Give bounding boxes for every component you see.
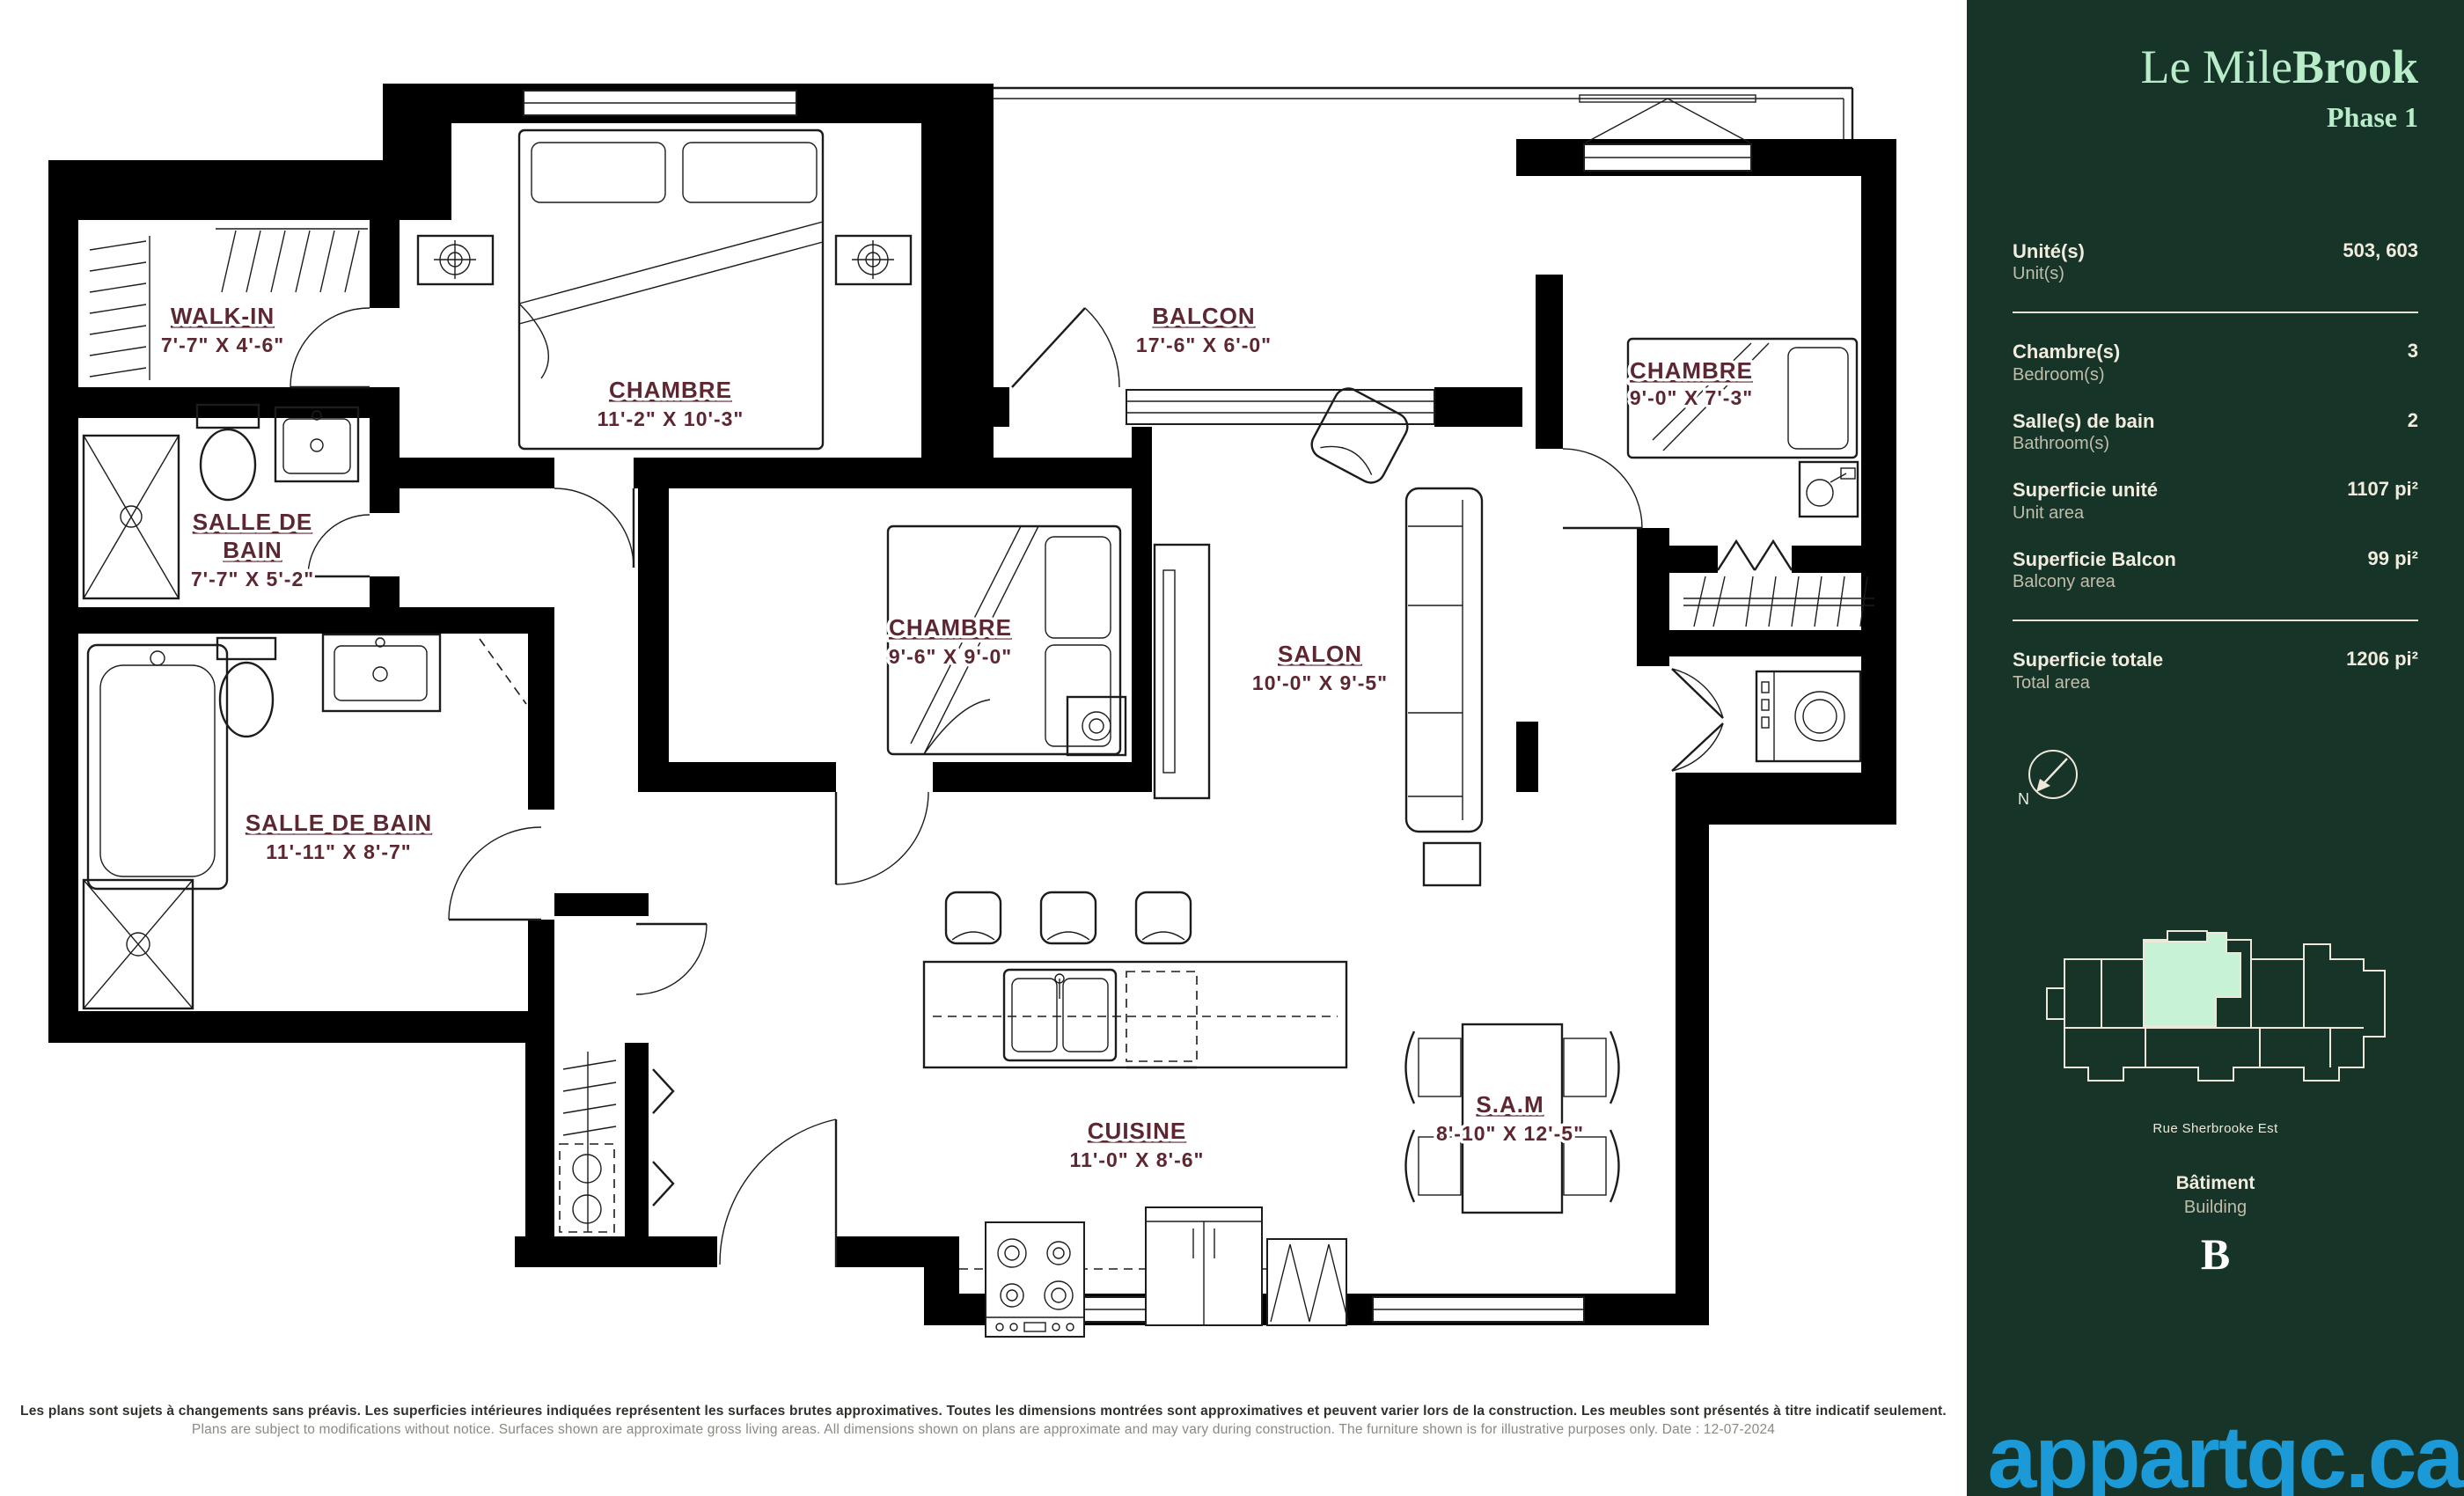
north-compass-icon: N xyxy=(2013,743,2088,817)
room-label-chambre1: CHAMBRE 11'-2" X 10'-3" xyxy=(598,377,744,430)
door-master xyxy=(554,488,634,568)
bathtub-icon xyxy=(88,645,227,889)
svg-text:11'-11" X 8'-7": 11'-11" X 8'-7" xyxy=(266,840,411,863)
building-letter: B xyxy=(2013,1228,2418,1280)
bar-stool-icon xyxy=(946,892,1001,943)
svg-text:SALLE DE: SALLE DE xyxy=(193,509,313,535)
shower-icon xyxy=(84,436,179,598)
street-caption: Rue Sherbrooke Est xyxy=(2013,1121,2418,1136)
compass: N xyxy=(2013,743,2418,821)
svg-text:11'-0" X 8'-6": 11'-0" X 8'-6" xyxy=(1070,1148,1205,1171)
disclaimer: Les plans sont sujets à changements sans… xyxy=(0,1401,1967,1441)
sofa-icon xyxy=(1406,488,1482,832)
room-label-cuisine: CUISINE 11'-0" X 8'-6" xyxy=(1070,1118,1205,1171)
floor-plan-drawing: WALK-IN 7'-7" X 4'-6" SALLE DE BAIN 7'-7… xyxy=(0,0,1967,1386)
hall-closet-fittings xyxy=(560,1052,616,1232)
spec-total-area: Superficie totale Total area 1206 pi² xyxy=(2013,648,2418,694)
water-heater-icon xyxy=(560,1144,614,1232)
spec-bathrooms: Salle(s) de bain Bathroom(s) 2 xyxy=(2013,409,2418,456)
door-entry-double xyxy=(1672,669,1723,771)
spec-unit-area-value: 1107 pi² xyxy=(2347,478,2418,501)
project-title: Le MileBrook xyxy=(2013,42,2418,92)
dining-furniture xyxy=(1406,1024,1619,1213)
bedroom2-furniture xyxy=(888,526,1126,755)
svg-text:10'-0" X 9'-5": 10'-0" X 9'-5" xyxy=(1252,671,1388,694)
fridge-icon xyxy=(1146,1207,1262,1325)
door-bedroom3 xyxy=(1563,449,1642,528)
room-label-chambre3: CHAMBRE 9'-0" X 7'-3" xyxy=(1630,357,1753,409)
divider xyxy=(2013,312,2418,313)
room-label-walkin: WALK-IN 7'-7" X 4'-6" xyxy=(161,303,284,356)
spec-total-area-value: 1206 pi² xyxy=(2346,648,2418,671)
building-label-fr: Bâtiment xyxy=(2013,1173,2418,1194)
spec-bedrooms-value: 3 xyxy=(2408,340,2418,363)
project-phase: Phase 1 xyxy=(2013,101,2418,134)
svg-text:SALLE DE BAIN: SALLE DE BAIN xyxy=(246,810,432,836)
spec-bathrooms-value: 2 xyxy=(2408,409,2418,432)
spec-balcony-area: Superficie Balcon Balcony area 99 pi² xyxy=(2013,547,2418,594)
svg-text:BALCON: BALCON xyxy=(1152,303,1255,329)
room-label-salon: SALON 10'-0" X 9'-5" xyxy=(1252,641,1388,694)
stove-icon xyxy=(986,1222,1084,1337)
window-bedroom3-casement xyxy=(1580,95,1756,171)
building-footprint-icon xyxy=(2040,905,2392,1094)
entry-closet-fittings xyxy=(1683,576,1874,627)
disclaimer-french: Les plans sont sujets à changements sans… xyxy=(0,1404,1967,1419)
door-hall-closet xyxy=(636,924,707,994)
building-block: Bâtiment Building B xyxy=(2013,1173,2418,1280)
svg-text:CHAMBRE: CHAMBRE xyxy=(889,614,1012,641)
door-walkin xyxy=(290,308,370,387)
desk-lamp-icon xyxy=(1800,462,1858,517)
svg-text:7'-7" X 5'-2": 7'-7" X 5'-2" xyxy=(191,568,314,590)
washer-dryer-icon xyxy=(1756,671,1860,761)
door-bath1 xyxy=(308,515,370,576)
spec-bedrooms: Chambre(s) Bedroom(s) 3 xyxy=(2013,340,2418,386)
island-counter-icon xyxy=(924,962,1346,1067)
tv-console-icon xyxy=(1155,545,1209,798)
spec-units-value: 503, 603 xyxy=(2343,239,2418,262)
window-dining xyxy=(1373,1297,1584,1322)
svg-text:7'-7" X 4'-6": 7'-7" X 4'-6" xyxy=(161,334,284,356)
door-bath2 xyxy=(449,827,541,920)
building-minimap: Rue Sherbrooke Est xyxy=(2013,905,2418,1136)
svg-text:N: N xyxy=(2018,790,2029,808)
info-sidebar: Le MileBrook Phase 1 Unité(s) Unit(s) 50… xyxy=(1967,0,2464,1496)
svg-text:CUISINE: CUISINE xyxy=(1088,1118,1186,1144)
door-corridor xyxy=(720,1119,836,1267)
svg-text:9'-0" X 7'-3": 9'-0" X 7'-3" xyxy=(1630,386,1753,409)
window-master-bedroom xyxy=(524,91,796,115)
svg-text:11'-2" X 10'-3": 11'-2" X 10'-3" xyxy=(598,407,744,430)
svg-text:8'-10" X 12'-5": 8'-10" X 12'-5" xyxy=(1436,1122,1584,1145)
svg-text:CHAMBRE: CHAMBRE xyxy=(1630,357,1753,384)
highlighted-unit xyxy=(2144,933,2240,1026)
salon-furniture xyxy=(1155,384,1482,885)
chair-icon xyxy=(1406,1031,1462,1104)
floor-plan-sheet: WALK-IN 7'-7" X 4'-6" SALLE DE BAIN 7'-7… xyxy=(0,0,2464,1496)
spec-balcony-area-value: 99 pi² xyxy=(2368,547,2418,570)
door-balcony-patio xyxy=(1012,308,1119,387)
nightstand-icon xyxy=(418,236,493,284)
svg-text:CHAMBRE: CHAMBRE xyxy=(609,377,732,403)
spec-unit-area: Superficie unité Unit area 1107 pi² xyxy=(2013,478,2418,524)
side-table-icon xyxy=(1424,843,1480,885)
toilet-icon xyxy=(197,405,259,500)
kitchen-fixtures xyxy=(924,892,1348,1337)
room-label-bath2: SALLE DE BAIN 11'-11" X 8'-7" xyxy=(246,810,432,863)
door-bedroom2 xyxy=(836,792,928,884)
dishwasher-icon xyxy=(1126,972,1197,1067)
pantry-icon xyxy=(1267,1239,1348,1325)
floor-plan-area: WALK-IN 7'-7" X 4'-6" SALLE DE BAIN 7'-7… xyxy=(0,0,1967,1496)
unit-specs: Unité(s) Unit(s) 503, 603 Chambre(s) Bed… xyxy=(2013,239,2418,694)
svg-text:WALK-IN: WALK-IN xyxy=(171,303,275,329)
brand-block: Le MileBrook Phase 1 xyxy=(2013,42,2418,134)
room-label-chambre2: CHAMBRE 9'-6" X 9'-0" xyxy=(889,614,1012,668)
nightstand-icon xyxy=(836,236,911,284)
shower-icon xyxy=(84,880,193,1008)
bar-stool-icon xyxy=(1136,892,1191,943)
door-bifold-closet xyxy=(1718,541,1792,570)
svg-text:SALON: SALON xyxy=(1278,641,1362,667)
svg-text:17'-6" X 6'-0": 17'-6" X 6'-0" xyxy=(1136,334,1272,356)
svg-text:9'-6" X 9'-0": 9'-6" X 9'-0" xyxy=(889,645,1012,668)
chair-icon xyxy=(1564,1031,1619,1104)
disclaimer-english: Plans are subject to modifications witho… xyxy=(0,1422,1967,1438)
divider xyxy=(2013,620,2418,621)
svg-text:BAIN: BAIN xyxy=(223,537,282,563)
room-label-balcon: BALCON 17'-6" X 6'-0" xyxy=(1136,303,1272,356)
shower-glass-icon xyxy=(480,639,526,704)
watermark-link[interactable]: appartqc.ca xyxy=(1988,1407,2462,1496)
sink-icon xyxy=(323,634,440,711)
dining-table-icon xyxy=(1463,1024,1562,1213)
svg-text:S.A.M: S.A.M xyxy=(1476,1091,1544,1118)
spec-units: Unité(s) Unit(s) 503, 603 xyxy=(2013,239,2418,286)
double-sink-icon xyxy=(1004,970,1116,1060)
room-label-bath1: SALLE DE BAIN 7'-7" X 5'-2" xyxy=(191,509,314,590)
bar-stool-icon xyxy=(1041,892,1096,943)
door-bifold-hall xyxy=(653,1069,673,1206)
sink-icon xyxy=(275,407,358,481)
building-label-en: Building xyxy=(2013,1198,2418,1218)
